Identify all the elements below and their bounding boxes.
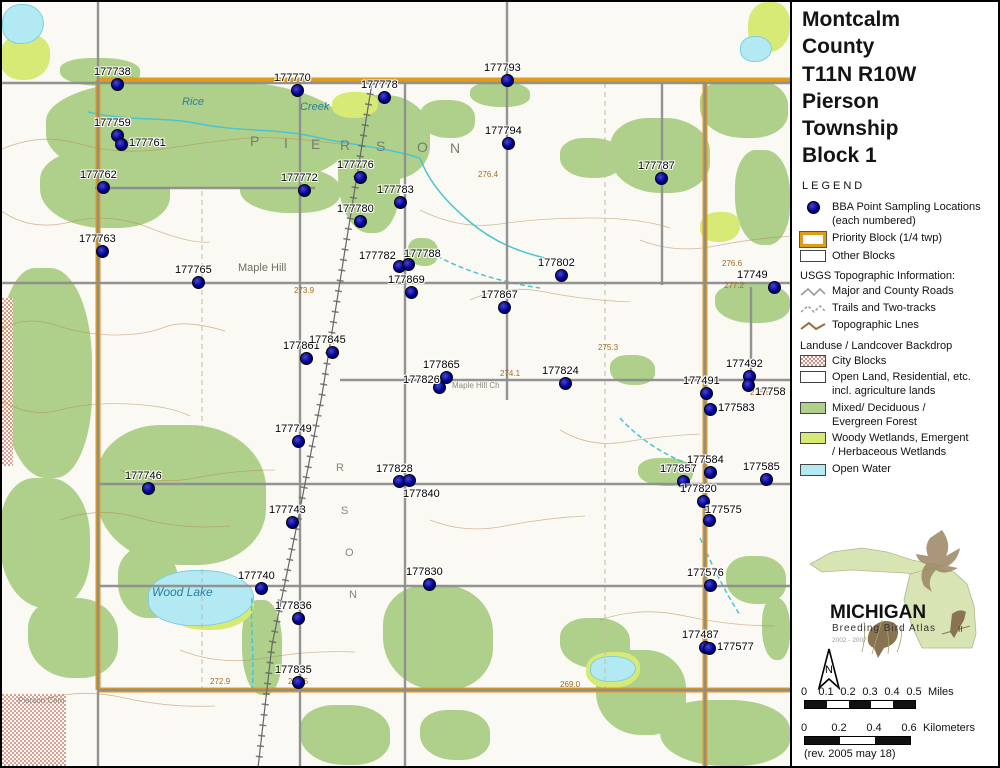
bba-point-label: 177865	[423, 359, 460, 371]
bba-point-label: 177759	[94, 117, 131, 129]
place-label: Rice	[182, 96, 204, 108]
logo-name: MICHIGAN	[830, 602, 926, 623]
elevation-label: 276.4	[478, 170, 498, 179]
legend-label: Open Water	[832, 463, 891, 477]
map-region: RiceCreekPIERSONMaple HillMaple Hill ChW…	[0, 0, 790, 768]
scale-tick: 0	[794, 722, 814, 734]
bba-point-marker	[704, 579, 717, 592]
scale-unit: Miles	[928, 686, 954, 698]
legend-label: Other Blocks	[832, 250, 895, 264]
bba-point-marker	[394, 196, 407, 209]
legend-label: Topographic Lnes	[832, 319, 919, 333]
trails-line-symbol	[800, 303, 826, 315]
legend-item-priority-block: Priority Block (1/4 twp)	[800, 232, 998, 247]
scale-tick: 0.2	[838, 686, 858, 698]
bba-point-marker	[742, 379, 755, 392]
bba-point-label: 177836	[275, 600, 312, 612]
legend-label: Mixed/ Deciduous /	[832, 402, 926, 416]
elevation-label: 273.9	[294, 286, 314, 295]
elevation-label: 275.3	[598, 343, 618, 352]
legend-item-open-land: Open Land, Residential, etc. incl. agric…	[800, 371, 998, 399]
legend-label: Trails and Two-tracks	[832, 302, 936, 316]
legend-body: BBA Point Sampling Locations (each numbe…	[800, 198, 998, 480]
city-blocks-symbol	[800, 355, 826, 367]
scale-tick: 0.5	[904, 686, 924, 698]
elevation-label: 277.2	[724, 281, 744, 290]
bba-point-marker	[498, 301, 511, 314]
bba-point-label: 177802	[538, 257, 575, 269]
bba-point-label: 177763	[79, 233, 116, 245]
logo-subtitle: Breeding Bird Atlas	[832, 623, 936, 634]
place-label: R	[340, 137, 350, 153]
bba-point-marker	[142, 482, 155, 495]
bba-point-label: 177830	[406, 566, 443, 578]
bba-point-label: 177743	[269, 504, 306, 516]
bba-point-marker	[292, 612, 305, 625]
scale-tick: 0	[794, 686, 814, 698]
usgs-heading: USGS Topographic Information:	[800, 270, 998, 282]
logo-numeral: II	[958, 625, 962, 634]
elevation-label: 269.0	[560, 680, 580, 689]
bba-point-label: 17758	[755, 386, 786, 398]
elevation-label: 274.1	[500, 369, 520, 378]
bba-point-label: 177787	[638, 160, 675, 172]
legend-item-topo-lines: Topographic Lnes	[800, 319, 998, 333]
map-title-line: County	[802, 33, 916, 60]
bba-point-label: 177793	[484, 62, 521, 74]
bba-point-label: 177828	[376, 463, 413, 475]
place-label: Maple Hill Ch	[452, 381, 500, 390]
bba-point-label: 177770	[274, 72, 311, 84]
open-water-symbol	[800, 464, 826, 476]
bba-point-label: 17749	[737, 269, 768, 281]
bba-point-label: 177738	[94, 66, 131, 78]
scale-bar	[804, 736, 911, 745]
bba-point-label: 177576	[687, 567, 724, 579]
bba-point-marker	[286, 516, 299, 529]
legend-label: incl. agriculture lands	[832, 385, 971, 399]
bba-point-label: 177788	[404, 248, 441, 260]
scale-tick: 0.2	[829, 722, 849, 734]
bba-point-marker	[96, 245, 109, 258]
revision-note: (rev. 2005 may 18)	[804, 748, 896, 760]
legend-label: Woody Wetlands, Emergent	[832, 432, 969, 446]
bba-point-label: 177762	[80, 169, 117, 181]
place-label: S	[376, 138, 385, 154]
legend-panel: MontcalmCountyT11N R10WPiersonTownshipBl…	[790, 0, 1000, 768]
bba-point-marker	[192, 276, 205, 289]
place-label: P	[250, 133, 259, 149]
legend-label: Priority Block (1/4 twp)	[832, 232, 942, 246]
legend-item-trails: Trails and Two-tracks	[800, 302, 998, 316]
bba-point-label: 177585	[743, 461, 780, 473]
scale-tick: 0.4	[864, 722, 884, 734]
forest-symbol	[800, 402, 826, 414]
bba-point-label: 177749	[275, 423, 312, 435]
michigan-bba-logo: MICHIGAN Breeding Bird Atlas II 2002 - 2…	[792, 522, 1000, 662]
bba-point-marker	[354, 215, 367, 228]
bba-point-marker	[298, 184, 311, 197]
place-label: O	[417, 139, 428, 155]
bba-point-marker	[354, 171, 367, 184]
bba-point-marker	[300, 352, 313, 365]
wetlands-symbol	[800, 432, 826, 444]
legend-label: (each numbered)	[832, 215, 981, 229]
map-title: MontcalmCountyT11N R10WPiersonTownshipBl…	[802, 6, 916, 170]
map-title-line: Township	[802, 115, 916, 142]
bba-point-marker	[111, 78, 124, 91]
bba-point-marker	[501, 74, 514, 87]
scale-unit: Kilometers	[923, 722, 975, 734]
elevation-label: 276.6	[722, 259, 742, 268]
scale-tick: 0.1	[816, 686, 836, 698]
bba-point-marker	[378, 91, 391, 104]
legend-label: BBA Point Sampling Locations	[832, 201, 981, 215]
bba-point-marker	[292, 676, 305, 689]
landuse-heading: Landuse / Landcover Backdrop	[800, 340, 998, 352]
north-label: N	[825, 664, 833, 676]
map-title-line: T11N R10W	[802, 61, 916, 88]
bba-point-label: 177780	[337, 203, 374, 215]
bba-point-marker	[760, 473, 773, 486]
place-label: R	[336, 462, 344, 474]
place-label: O	[345, 547, 354, 559]
bba-point-label: 177487	[682, 629, 719, 641]
scale-tick: 0.3	[860, 686, 880, 698]
bba-point-label: 177761	[129, 137, 166, 149]
roads-line-symbol	[800, 286, 826, 298]
bba-point-marker	[559, 377, 572, 390]
bba-point-marker	[704, 466, 717, 479]
bba-point-label: 177783	[377, 184, 414, 196]
bba-point-marker	[291, 84, 304, 97]
map-title-line: Block 1	[802, 142, 916, 169]
bba-point-label: 177820	[680, 483, 717, 495]
map-backdrop-lines	[0, 0, 790, 768]
bba-point-marker	[502, 137, 515, 150]
legend-label: Major and County Roads	[832, 285, 954, 299]
map-title-line: Montcalm	[802, 6, 916, 33]
place-label: Pierson Cem	[18, 696, 64, 705]
bba-point-marker	[403, 474, 416, 487]
bba-point-label: 177575	[705, 504, 742, 516]
bba-point-label: 177583	[718, 402, 755, 414]
bba-point-label: 177867	[481, 289, 518, 301]
bba-point-marker	[115, 138, 128, 151]
legend-item-wetlands: Woody Wetlands, Emergent / Herbaceous We…	[800, 432, 998, 460]
bba-point-marker	[768, 281, 781, 294]
bba-point-marker	[700, 387, 713, 400]
place-label: Creek	[300, 101, 329, 113]
bba-point-marker	[423, 578, 436, 591]
bba-point-marker	[97, 181, 110, 194]
bba-point-marker	[405, 286, 418, 299]
place-label: I	[284, 135, 288, 151]
bba-point-label: 177492	[726, 358, 763, 370]
legend-label: Evergreen Forest	[832, 416, 926, 430]
legend-label: Open Land, Residential, etc.	[832, 371, 971, 385]
bba-point-label: 177826	[403, 374, 440, 386]
bba-point-label: 177824	[542, 365, 579, 377]
place-label: Wood Lake	[152, 585, 213, 599]
bba-point-marker	[655, 172, 668, 185]
legend-item-other-blocks: Other Blocks	[800, 250, 998, 264]
scale-tick: 0.6	[899, 722, 919, 734]
bba-point-marker	[555, 269, 568, 282]
bba-point-label: 177778	[361, 79, 398, 91]
bba-point-label: 177794	[485, 125, 522, 137]
bba-point-label: 177776	[337, 159, 374, 171]
bba-point-marker	[703, 642, 716, 655]
place-label: N	[450, 140, 460, 156]
legend-label: / Herbaceous Wetlands	[832, 446, 969, 460]
legend-item-forest: Mixed/ Deciduous / Evergreen Forest	[800, 402, 998, 430]
bba-point-label: 177840	[403, 488, 440, 500]
bba-point-marker	[255, 582, 268, 595]
scale-tick: 0.4	[882, 686, 902, 698]
bba-point-label: 177869	[388, 274, 425, 286]
legend-item-open-water: Open Water	[800, 463, 998, 477]
legend-item-roads: Major and County Roads	[800, 285, 998, 299]
place-label: E	[311, 136, 320, 152]
bba-point-label: 177772	[281, 172, 318, 184]
bba-point-marker	[704, 403, 717, 416]
bba-point-label: 177845	[309, 334, 346, 346]
place-label: N	[349, 589, 357, 601]
topo-line-symbol	[800, 320, 826, 332]
bba-point-marker	[326, 346, 339, 359]
bba-point-label: 177491	[683, 375, 720, 387]
bba-point-label: 177577	[717, 641, 754, 653]
bba-point-label: 177765	[175, 264, 212, 276]
legend-item-bba: BBA Point Sampling Locations (each numbe…	[800, 201, 998, 229]
priority-block-symbol	[800, 232, 826, 247]
legend-item-city-blocks: City Blocks	[800, 355, 998, 369]
bba-point-label: 177835	[275, 664, 312, 676]
other-blocks-symbol	[800, 250, 826, 262]
bba-point-label: 177740	[238, 570, 275, 582]
elevation-label: 272.9	[210, 677, 230, 686]
bba-point-label: 177782	[359, 250, 396, 262]
bba-point-marker	[292, 435, 305, 448]
map-title-line: Pierson	[802, 88, 916, 115]
bba-point-label: 177746	[125, 470, 162, 482]
bba-point-label: 177584	[687, 454, 724, 466]
logo-years: 2002 - 2007	[832, 637, 867, 644]
place-label: Maple Hill	[238, 262, 286, 274]
scale-bar-miles: 00.10.20.30.40.5Miles	[800, 686, 996, 716]
legend-label: City Blocks	[832, 355, 886, 369]
legend-heading: LEGEND	[802, 180, 865, 192]
place-label: S	[341, 505, 348, 517]
scale-bar	[804, 700, 916, 709]
open-land-symbol	[800, 371, 826, 383]
bba-point-symbol	[800, 201, 826, 213]
